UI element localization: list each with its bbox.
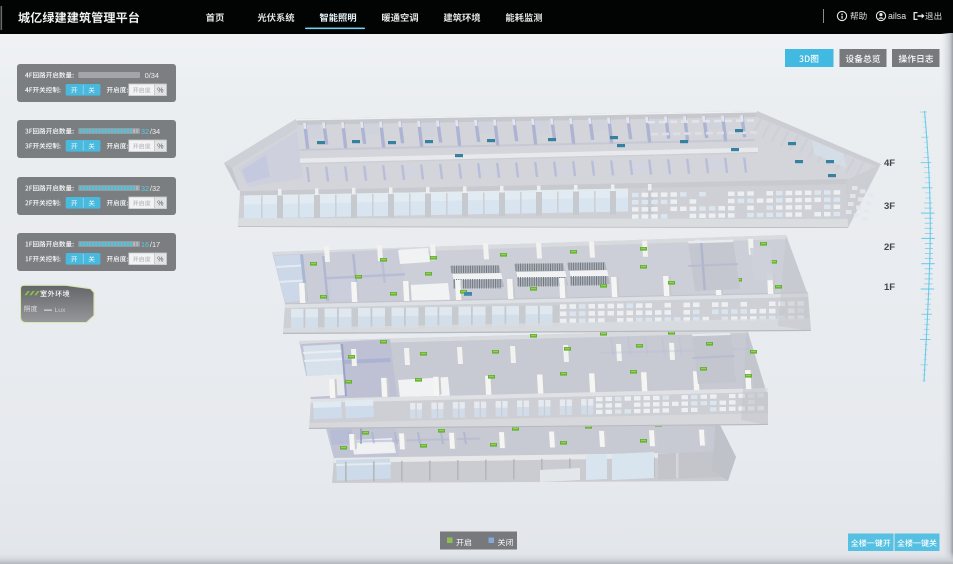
svg-text:%: %	[157, 88, 163, 95]
svg-text:%: %	[157, 144, 163, 151]
svg-text:16: 16	[141, 240, 149, 249]
svg-text:Lux: Lux	[55, 307, 67, 314]
svg-text:ailsa: ailsa	[888, 11, 906, 21]
svg-text:/34: /34	[150, 127, 160, 136]
svg-text:/32: /32	[150, 184, 160, 193]
svg-text:%: %	[157, 257, 163, 264]
svg-text:4F: 4F	[884, 158, 895, 169]
svg-text:%: %	[157, 201, 163, 208]
svg-text:3F: 3F	[884, 201, 895, 212]
svg-text:2F: 2F	[884, 242, 895, 253]
svg-text:0/34: 0/34	[145, 71, 159, 80]
svg-text:32: 32	[141, 184, 149, 193]
svg-text:/17: /17	[150, 240, 160, 249]
svg-text:32: 32	[141, 127, 149, 136]
svg-text:1F: 1F	[884, 282, 895, 293]
